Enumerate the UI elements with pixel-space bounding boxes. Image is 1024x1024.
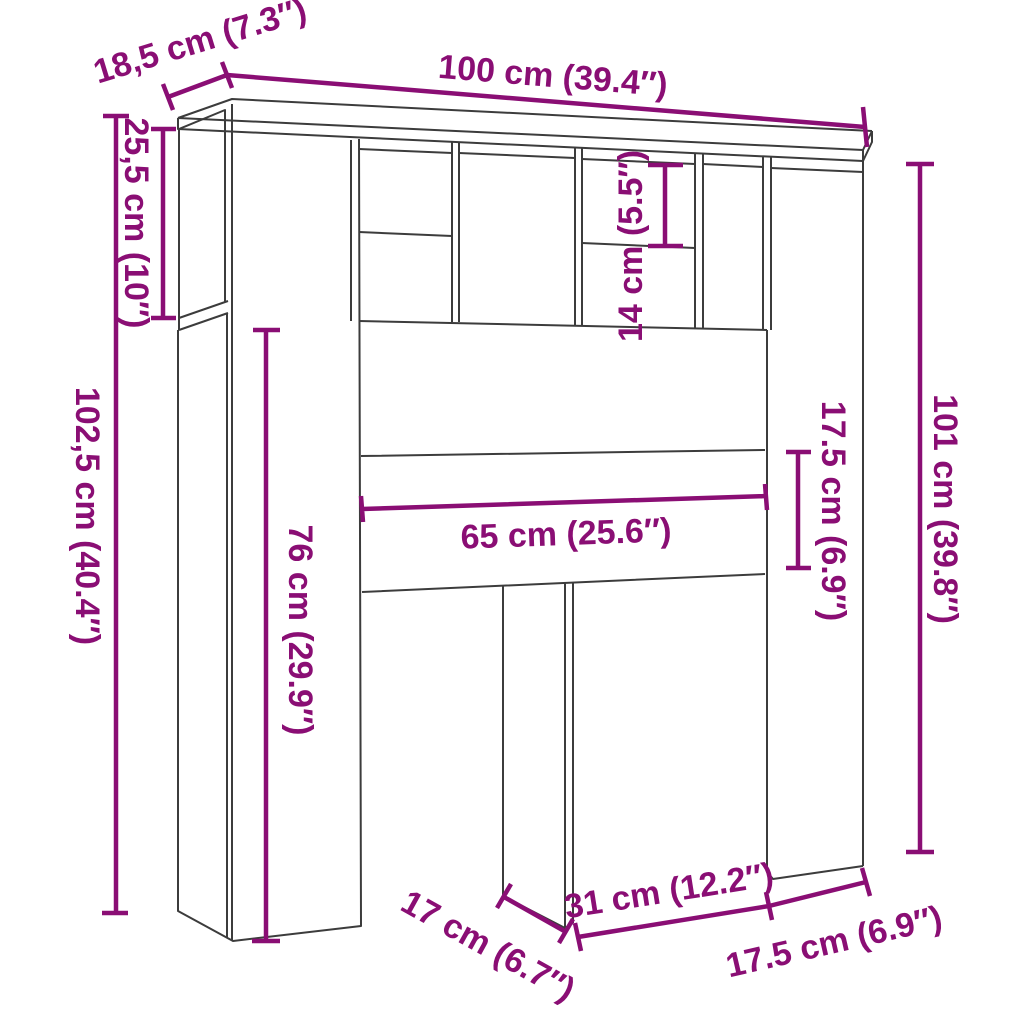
dim-top-width: 100 cm (39.4″) <box>227 48 867 147</box>
dim-rail-height: 17.5 cm (6.9″) <box>786 401 852 621</box>
left-column <box>178 104 361 941</box>
dim-bottom-gap-width-label: 31 cm (12.2″) <box>562 856 776 927</box>
dim-right-leg-width-label: 17.5 cm (6.9″) <box>722 899 945 986</box>
dim-upper-left-height-label: 25,5 cm (10″) <box>117 118 155 329</box>
dim-rail-height-label: 17.5 cm (6.9″) <box>814 401 852 621</box>
dim-overall-height-right-label: 101 cm (39.8″) <box>926 394 964 624</box>
dim-overall-height-right: 101 cm (39.8″) <box>906 164 964 852</box>
dim-rail-height-line <box>786 452 811 568</box>
middle-leg <box>503 583 573 928</box>
top-compartment-floor <box>359 321 767 330</box>
dim-upper-left-height: 25,5 cm (10″) <box>117 118 176 329</box>
dim-leg-depth-label: 17 cm (6.7″) <box>395 883 581 1009</box>
top-compartment-ceilings <box>359 149 863 172</box>
dim-left-opening-height-label: 76 cm (29.9″) <box>281 525 319 736</box>
dimension-diagram: 18,5 cm (7.3″) 100 cm (39.4″) 25,5 cm (1… <box>0 0 1024 1024</box>
dim-left-opening-height-line <box>252 330 280 941</box>
left-end-cubby <box>179 110 228 330</box>
dim-middle-opening-width-label: 65 cm (25.6″) <box>460 511 672 556</box>
dim-top-depth: 18,5 cm (7.3″) <box>89 0 311 110</box>
dim-bottom-gap-width: 31 cm (12.2″) <box>562 856 776 951</box>
dim-overall-height-left-label: 102,5 cm (40.4″) <box>68 387 106 645</box>
dim-leg-depth: 17 cm (6.7″) <box>395 883 581 1009</box>
dimension-annotations: 18,5 cm (7.3″) 100 cm (39.4″) 25,5 cm (1… <box>68 0 964 1009</box>
dim-right-leg-width-line <box>769 868 870 906</box>
diagram-canvas: 18,5 cm (7.3″) 100 cm (39.4″) 25,5 cm (1… <box>0 0 1024 1024</box>
dim-left-opening-height: 76 cm (29.9″) <box>252 330 319 941</box>
top-board <box>178 99 872 161</box>
dim-top-cubby-height: 14 cm (5.5″) <box>612 150 683 342</box>
dim-middle-opening-width: 65 cm (25.6″) <box>361 484 767 557</box>
dim-top-cubby-height-line <box>648 165 683 246</box>
dim-top-cubby-height-label: 14 cm (5.5″) <box>612 150 650 342</box>
